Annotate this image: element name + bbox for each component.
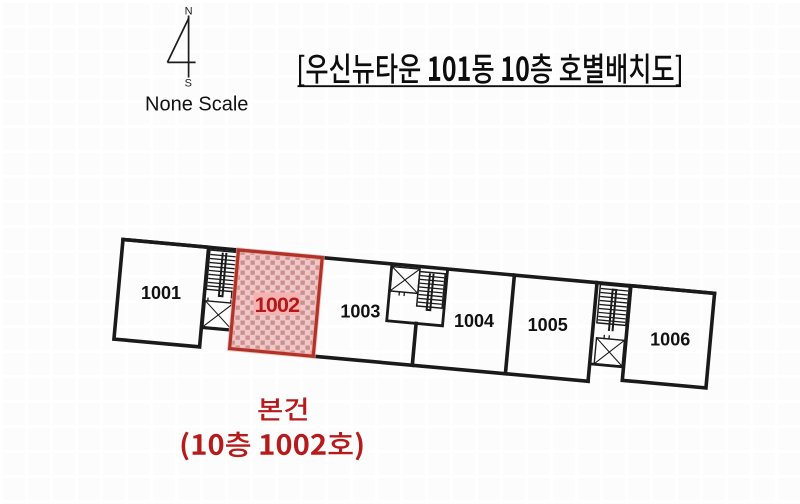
svg-text:S: S	[185, 78, 192, 90]
svg-text:1003: 1003	[340, 302, 380, 322]
svg-text:1001: 1001	[141, 283, 181, 303]
svg-text:1005: 1005	[528, 315, 568, 335]
svg-text:None Scale: None Scale	[145, 94, 248, 116]
svg-text:1006: 1006	[650, 330, 690, 350]
svg-text:1004: 1004	[454, 311, 494, 331]
svg-text:1002: 1002	[255, 293, 300, 317]
svg-text:N: N	[185, 6, 193, 18]
